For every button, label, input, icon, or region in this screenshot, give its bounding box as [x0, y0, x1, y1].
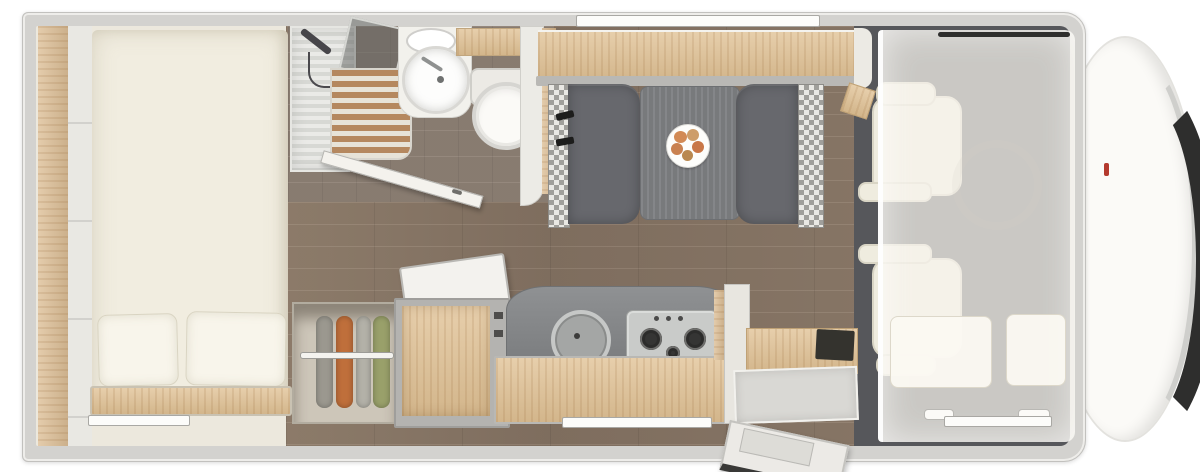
kitchen-unit-front [494, 356, 740, 424]
wardrobe-garment-green [373, 316, 390, 408]
kitchen-end-wood-trim [714, 290, 724, 360]
entry-step-floor [733, 366, 859, 424]
rear-window-strip [88, 415, 190, 426]
shower-hose [308, 52, 332, 88]
storage-chest-interior [402, 306, 490, 416]
rear-headboard-wood-panel [38, 26, 68, 446]
wardrobe-garment-orange [336, 316, 353, 408]
wardrobe-garment-gray-1 [316, 316, 333, 408]
food-roll-1 [674, 131, 687, 143]
bathroom-wood-shelf [456, 28, 528, 56]
dinette-bench-right [736, 84, 798, 224]
food-roll-2 [687, 129, 699, 141]
dinette-window-strip [576, 15, 820, 27]
sink-knob [574, 333, 580, 339]
food-roll-5 [682, 150, 693, 161]
rear-cabinet-front [68, 26, 92, 446]
kitchen-window-strip [562, 417, 712, 428]
front-badge-red [1104, 163, 1109, 176]
wall-mounted-tv [815, 329, 855, 361]
windshield-top-edge [938, 32, 1070, 37]
dinette-bench-left [568, 84, 640, 224]
hob-knob-1 [654, 316, 659, 321]
hob-knob-3 [678, 316, 683, 321]
food-roll-3 [692, 141, 704, 153]
washbasin-round [402, 46, 470, 114]
bench-left-side-panel [548, 84, 570, 228]
dinette-end-wall [854, 28, 872, 88]
hob-burner-right [684, 328, 706, 350]
washbasin-drain [437, 76, 444, 83]
chest-hinge-top [494, 312, 503, 319]
wardrobe-garment-gray-2 [356, 316, 371, 408]
cab-window-strip [944, 416, 1052, 427]
hob-knob-2 [666, 316, 671, 321]
bed-pillow-left [97, 313, 179, 387]
bed-foot-ledge [90, 386, 292, 416]
bed-pillow-right [185, 311, 286, 387]
chest-hinge-bottom [494, 330, 503, 337]
dropbed-pillow-left [890, 316, 992, 388]
hob-burner-left [640, 328, 662, 350]
wardrobe-hanging-rail [300, 352, 394, 359]
motorhome-floorplan [0, 0, 1200, 472]
dinette-overhead-sideboard [538, 30, 854, 81]
dropbed-pillow-right [1006, 314, 1066, 386]
bench-right-side-panel [798, 84, 824, 228]
